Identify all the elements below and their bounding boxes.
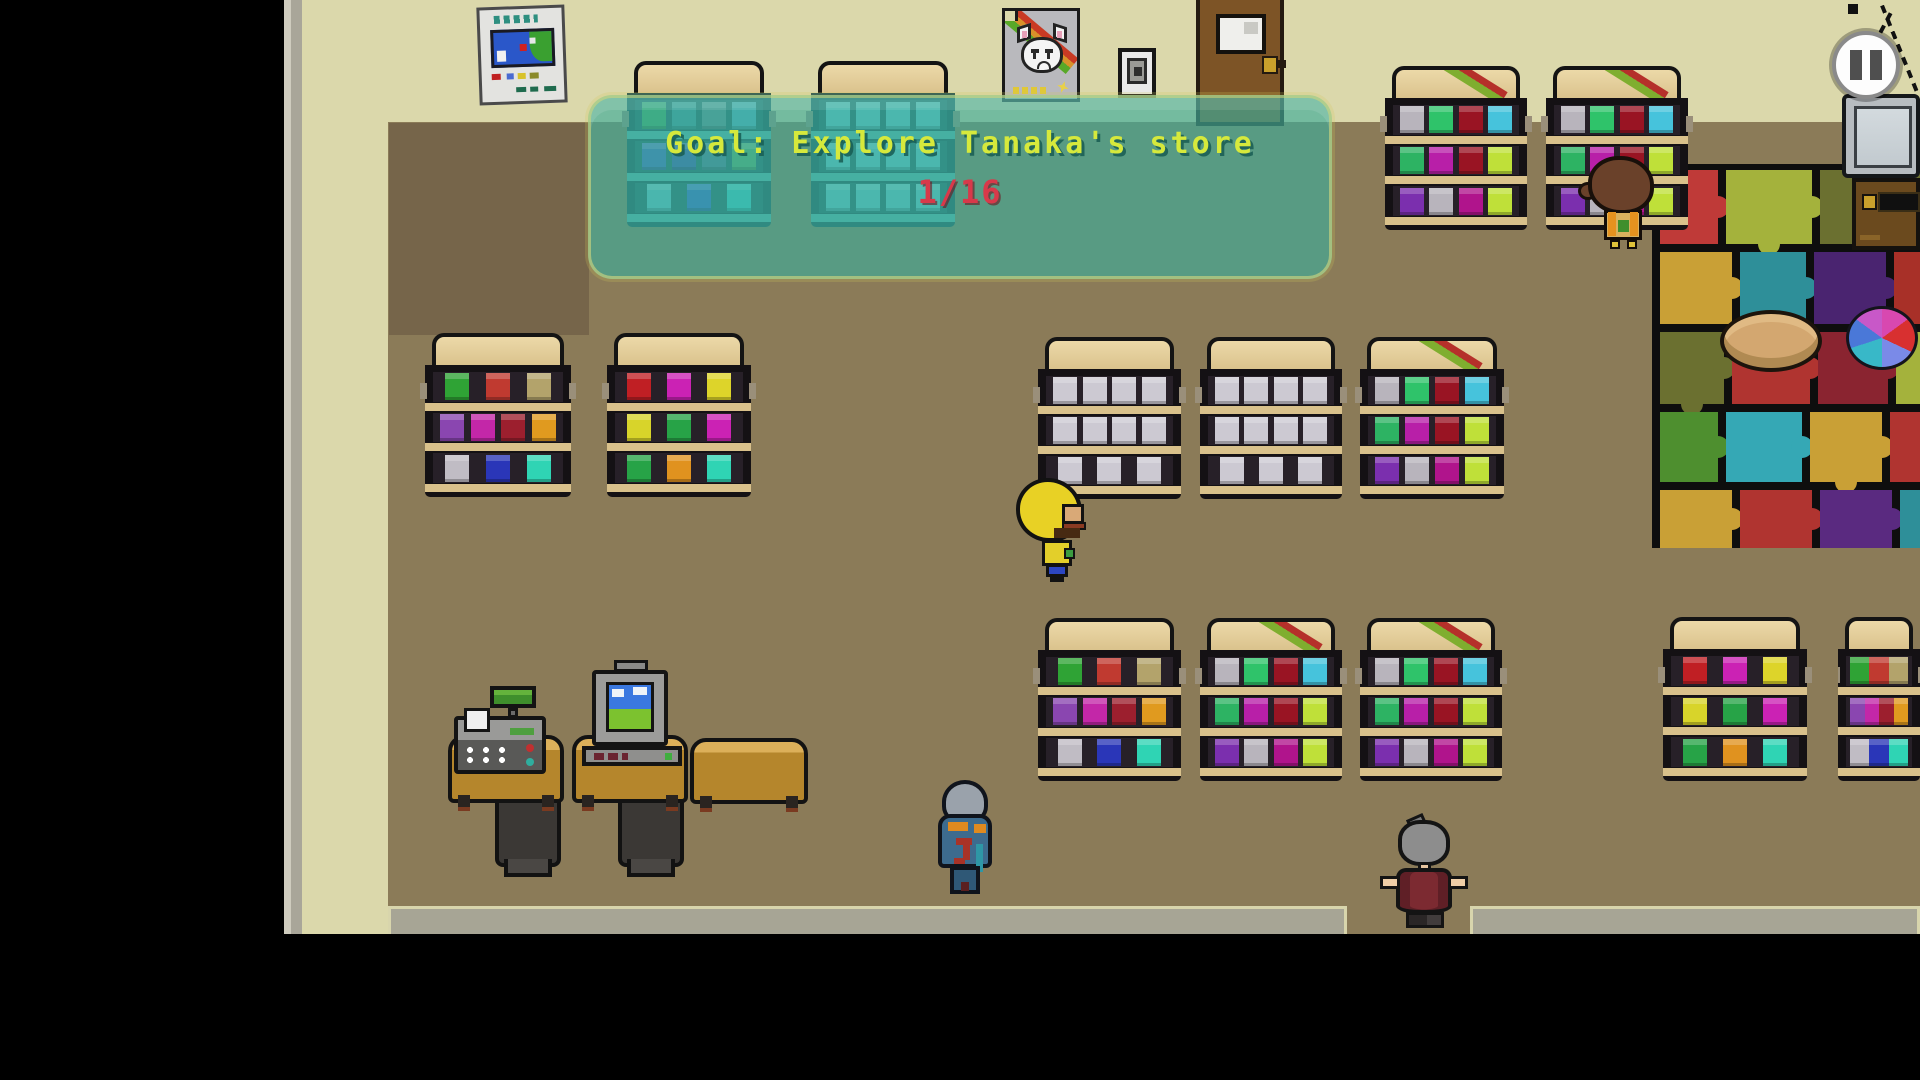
shelf-item	[486, 455, 510, 482]
shelf-item	[1215, 698, 1239, 725]
store-shelf	[1385, 66, 1527, 230]
bottom-wall-left	[388, 906, 1347, 934]
shelf-item	[1405, 377, 1429, 404]
shelf-item	[1137, 658, 1161, 685]
shelf-item	[1889, 739, 1908, 766]
shelf-item	[667, 455, 691, 482]
shelf-item	[1463, 739, 1487, 766]
shelf-item	[1429, 188, 1453, 215]
shelf-item	[1303, 377, 1327, 404]
shelf-item	[1465, 417, 1489, 444]
shelf-item	[1215, 658, 1239, 685]
puzzle-piece	[1726, 170, 1812, 244]
shelf-item	[1058, 739, 1082, 766]
side-table	[690, 738, 808, 804]
shelf-item	[1274, 658, 1298, 685]
store-shelf	[425, 333, 571, 497]
shelf-item	[1303, 417, 1327, 444]
shelf-item	[1404, 698, 1428, 725]
shelf-item	[1869, 739, 1888, 766]
shelf-item	[1375, 457, 1399, 484]
shelf-item	[1434, 658, 1458, 685]
shelf-item	[1303, 739, 1327, 766]
monitor-screen	[606, 682, 654, 732]
shelf-item	[1375, 658, 1399, 685]
shelf-item	[1142, 698, 1166, 725]
shelf-item	[527, 373, 551, 400]
store-shelf	[1200, 337, 1342, 499]
shelf-item	[1083, 377, 1107, 404]
shelf-item	[1850, 698, 1865, 725]
shelf-item	[1865, 698, 1880, 725]
shelf-item	[1215, 377, 1239, 404]
shelf-item	[1561, 106, 1585, 133]
store-shelf	[1360, 618, 1502, 781]
shelf-item	[1404, 658, 1428, 685]
shelf-item	[1465, 377, 1489, 404]
shelf-item	[1763, 698, 1787, 725]
shelf-item	[1112, 698, 1136, 725]
map-poster	[476, 4, 567, 105]
shelf-item	[1058, 658, 1082, 685]
shelf-item	[501, 414, 525, 441]
puzzle-piece	[1660, 332, 1724, 404]
npc-blue-hood	[934, 780, 996, 902]
outer-corridor	[302, 0, 388, 934]
shelf-item	[1434, 739, 1458, 766]
store-shelf	[1038, 618, 1181, 781]
vcr-slot	[1878, 192, 1920, 212]
shelf-item	[1303, 698, 1327, 725]
shelf-item	[1112, 417, 1136, 444]
power-led	[665, 753, 672, 760]
shelf-item	[1137, 457, 1161, 484]
shelf-item	[1459, 106, 1483, 133]
shelf-item	[1434, 698, 1458, 725]
shelf-item	[486, 373, 510, 400]
puzzle-piece	[1890, 412, 1920, 482]
shelf-item	[707, 373, 731, 400]
map-landmass	[529, 31, 552, 62]
goal-banner: Goal: Explore Tanaka's store 1/16	[588, 95, 1332, 279]
shelf-item	[1429, 147, 1453, 174]
shelf-item	[1274, 417, 1298, 444]
shelf-item	[471, 414, 495, 441]
shelf-item	[1142, 377, 1166, 404]
shelf-item	[1274, 698, 1298, 725]
shelf-item	[1889, 657, 1908, 684]
door-handle	[1262, 56, 1278, 74]
shelf-item	[1083, 698, 1107, 725]
shelf-item	[1590, 106, 1614, 133]
beach-ball	[1846, 306, 1918, 370]
shelf-item	[667, 373, 691, 400]
bottom-wall-right	[1470, 906, 1920, 934]
shelf-item	[1259, 457, 1283, 484]
tv-set	[1842, 94, 1920, 178]
shelf-item	[1400, 147, 1424, 174]
floor-shadow-patch	[389, 123, 589, 335]
shelf-item	[1763, 739, 1787, 766]
shelf-item	[1429, 106, 1453, 133]
letterbox-bottom	[0, 934, 1920, 1080]
cash-register	[450, 686, 550, 782]
shelf-item	[1649, 106, 1673, 133]
cat-poster	[1002, 8, 1080, 102]
antenna-tip	[1848, 4, 1858, 14]
shelf-item	[707, 455, 731, 482]
map-poster-title-scribble	[494, 14, 538, 24]
pause-button[interactable]	[1832, 31, 1900, 99]
shelf-item	[627, 373, 651, 400]
shelf-item	[1298, 457, 1322, 484]
store-shelf	[1360, 337, 1504, 499]
shelf-item	[1097, 457, 1121, 484]
shelf-item	[1723, 739, 1747, 766]
map-pin-icon	[520, 44, 527, 51]
shelf-item	[1142, 417, 1166, 444]
desktop-computer	[588, 660, 674, 766]
shelf-item	[1435, 417, 1459, 444]
shelf-item	[1723, 657, 1747, 684]
shelf-item	[1053, 417, 1077, 444]
shelf-item	[1723, 698, 1747, 725]
npc-gray-haired-lady	[1384, 818, 1464, 932]
shelf-item	[627, 455, 651, 482]
shelf-item	[1683, 739, 1707, 766]
shelf-item	[707, 414, 731, 441]
shelf-item	[1053, 377, 1077, 404]
star-icon	[1055, 79, 1070, 94]
receipt-paper	[464, 708, 490, 732]
player-blonde	[1016, 476, 1096, 584]
map-image	[490, 28, 555, 68]
game-viewport[interactable]: Goal: Explore Tanaka's store 1/16	[0, 0, 1920, 1080]
shelf-item	[1488, 188, 1512, 215]
shelf-item	[1053, 698, 1077, 725]
small-picture-frame	[1118, 48, 1156, 98]
shelf-item	[1137, 739, 1161, 766]
shelf-item	[1097, 658, 1121, 685]
shelf-item	[1400, 106, 1424, 133]
shelf-item	[1215, 417, 1239, 444]
shelf-item	[1435, 457, 1459, 484]
shelf-item	[1244, 698, 1268, 725]
shelf-item	[1274, 377, 1298, 404]
shelf-item	[1459, 147, 1483, 174]
shelf-item	[445, 373, 469, 400]
cabinet-knob	[1862, 194, 1877, 210]
map-legend	[497, 51, 506, 62]
puzzle-piece	[1660, 412, 1718, 482]
shelf-item	[1850, 739, 1869, 766]
pause-icon	[1850, 50, 1882, 80]
shelf-item	[1375, 739, 1399, 766]
puzzle-piece	[1900, 490, 1920, 548]
shelf-item	[1400, 188, 1424, 215]
shelf-item	[1869, 657, 1888, 684]
door-window	[1216, 14, 1266, 54]
tv-screen	[1854, 106, 1912, 168]
shelf-item	[440, 414, 464, 441]
lady-hair	[1398, 820, 1450, 866]
store-shelf	[1038, 337, 1181, 499]
puzzle-piece	[1820, 490, 1892, 548]
map-marker	[529, 38, 535, 44]
shelf-item	[1274, 739, 1298, 766]
shelf-item	[1244, 739, 1268, 766]
register-keypad	[466, 746, 510, 764]
shelf-item	[1879, 698, 1894, 725]
store-shelf	[607, 333, 751, 497]
shelf-item	[1404, 739, 1428, 766]
puzzle-piece	[1726, 412, 1802, 482]
npc-brown-haired-kid	[1582, 156, 1660, 252]
puzzle-piece	[1660, 490, 1732, 548]
shelf-item	[1097, 739, 1121, 766]
shelf-item	[1220, 457, 1244, 484]
puzzle-piece	[1660, 252, 1732, 324]
shelf-item	[1683, 698, 1707, 725]
shelf-item	[445, 455, 469, 482]
shelf-item	[527, 455, 551, 482]
crt-monitor	[592, 670, 668, 746]
shelf-item	[1463, 698, 1487, 725]
shelf-item	[1405, 457, 1429, 484]
store-shelf	[1838, 617, 1920, 781]
shelf-item	[1763, 657, 1787, 684]
wall-edge-highlight	[284, 0, 291, 934]
shelf-item	[1244, 658, 1268, 685]
shelf-item	[1435, 377, 1459, 404]
shelf-item	[1112, 377, 1136, 404]
wall-edge	[291, 0, 302, 934]
goal-progress: 1/16	[591, 173, 1329, 211]
tv-cabinet	[1852, 178, 1920, 250]
shelf-item	[1488, 147, 1512, 174]
letterbox-left	[0, 0, 284, 1080]
shelf-item	[1215, 739, 1239, 766]
shelf-item	[1683, 657, 1707, 684]
puzzle-piece	[1810, 412, 1882, 482]
shelf-item	[1375, 417, 1399, 444]
shelf-item	[1850, 657, 1869, 684]
shelf-item	[532, 414, 556, 441]
shelf-item	[1244, 377, 1268, 404]
shelf-item	[667, 414, 691, 441]
bread-basket	[1720, 310, 1822, 372]
kid-hair	[1588, 156, 1654, 214]
shelf-item	[1375, 698, 1399, 725]
shelf-item	[1620, 106, 1644, 133]
shelf-item	[1465, 457, 1489, 484]
shelf-item	[1375, 377, 1399, 404]
goal-text: Goal: Explore Tanaka's store	[591, 126, 1329, 161]
shelf-item	[1405, 417, 1429, 444]
store-shelf	[1663, 617, 1807, 781]
shelf-item	[1894, 698, 1909, 725]
shelf-item	[1244, 417, 1268, 444]
poster-scribble-text	[1013, 87, 1047, 94]
shelf-item	[1083, 417, 1107, 444]
shelf-item	[1303, 658, 1327, 685]
store-shelf	[1200, 618, 1342, 781]
shelf-item	[1488, 106, 1512, 133]
shelf-item	[627, 414, 651, 441]
shelf-item	[1463, 658, 1487, 685]
puzzle-piece	[1740, 490, 1812, 548]
register-display	[490, 686, 536, 708]
shelf-item	[1459, 188, 1483, 215]
